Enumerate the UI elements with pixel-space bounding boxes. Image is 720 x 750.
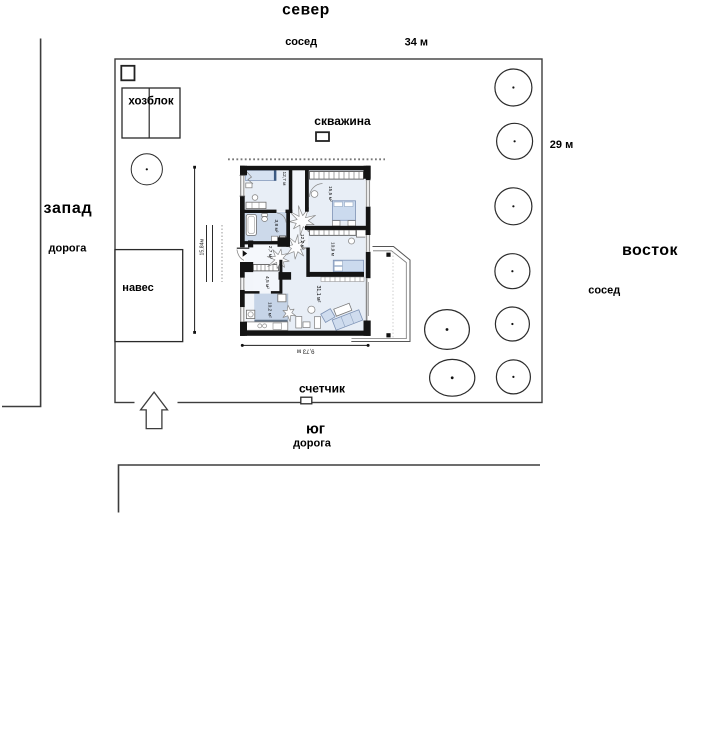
- svg-text:34 м: 34 м: [405, 36, 428, 48]
- svg-text:восток: восток: [622, 242, 678, 259]
- svg-text:юг: юг: [306, 421, 325, 438]
- svg-text:10,9 м: 10,9 м: [330, 242, 336, 256]
- svg-text:счетчик: счетчик: [299, 382, 346, 396]
- svg-text:12,7 м: 12,7 м: [281, 172, 287, 186]
- svg-text:2,7 м²: 2,7 м²: [267, 246, 273, 259]
- svg-text:дорога: дорога: [293, 438, 332, 450]
- svg-text:скважина: скважина: [314, 114, 371, 128]
- svg-text:29 м: 29 м: [550, 139, 573, 151]
- svg-text:10,2 м²: 10,2 м²: [267, 302, 273, 318]
- svg-text:сосед: сосед: [285, 36, 317, 48]
- svg-text:15,5 м²: 15,5 м²: [327, 186, 333, 202]
- svg-text:4,5 м²: 4,5 м²: [264, 276, 270, 289]
- svg-text:хозблок: хозблок: [128, 95, 173, 107]
- svg-text:запад: запад: [44, 200, 93, 217]
- svg-text:15,84м: 15,84м: [200, 239, 206, 256]
- svg-text:12,2 м²: 12,2 м²: [299, 234, 305, 250]
- svg-text:навес: навес: [122, 282, 153, 294]
- svg-text:31,1 м²: 31,1 м²: [315, 286, 321, 303]
- svg-text:сосед: сосед: [588, 284, 620, 296]
- svg-text:9,73 м: 9,73 м: [297, 347, 314, 353]
- svg-text:дорога: дорога: [49, 243, 88, 255]
- svg-text:3,8 м²: 3,8 м²: [273, 220, 279, 233]
- svg-text:север: север: [282, 2, 330, 19]
